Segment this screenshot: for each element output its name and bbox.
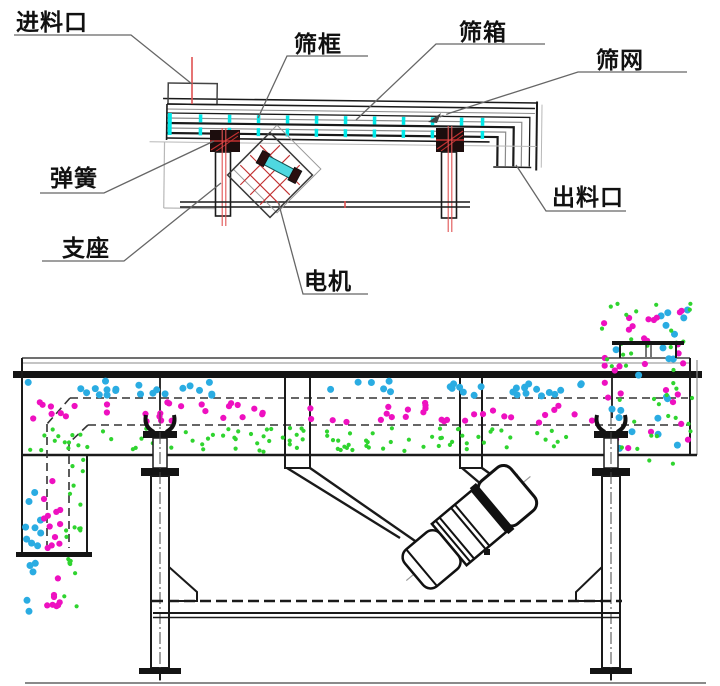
leader-lines — [14, 35, 687, 294]
label-discharge-outlet: 出料口 — [552, 184, 624, 210]
base-plate-left — [139, 668, 181, 674]
exciter-cylinder — [256, 150, 301, 183]
gusset-right — [576, 567, 602, 601]
particle-layer-left-channel-magenta — [41, 478, 63, 551]
particle-layer-left-stream-magenta — [44, 575, 63, 609]
label-motor: 电机 — [304, 268, 352, 294]
label-support: 支座 — [61, 235, 110, 261]
particle-layer-left-stream-green — [62, 557, 78, 608]
label-spring: 弹簧 — [50, 165, 98, 191]
vibrating-screen-diagram: 进料口 筛框 筛箱 筛网 弹簧 支座 电机 出料口 — [0, 0, 720, 686]
left-outlet-flange — [16, 552, 92, 557]
support-post-right — [442, 152, 457, 218]
motor-bolt — [484, 549, 490, 555]
particle-layer-left-channel-blue — [22, 489, 44, 549]
particle-layer-top-deck-oversize — [25, 378, 585, 400]
spring-assembly-right — [592, 415, 630, 476]
base-plate-right — [590, 668, 632, 674]
vibration-motor — [387, 453, 550, 603]
label-screen-mesh: 筛网 — [596, 47, 644, 73]
gusset-left — [169, 567, 197, 601]
particle-layer-feed-column-magenta — [601, 308, 691, 452]
label-screen-frame: 筛框 — [294, 31, 342, 57]
material-particles — [22, 302, 694, 615]
support-frame — [139, 412, 632, 681]
particle-layer-left-stream-blue — [24, 560, 39, 615]
particle-layer-mid-deck-medium — [30, 399, 595, 426]
spring-assembly-left — [141, 415, 179, 476]
cross-section-diagram — [13, 302, 706, 683]
spring-block-left — [210, 130, 240, 152]
particle-layer-bottom-deck-fines — [28, 426, 568, 454]
label-screen-box: 筛箱 — [459, 19, 507, 45]
side-view-diagram: 进料口 筛框 筛箱 筛网 弹簧 支座 电机 出料口 — [14, 9, 687, 294]
label-feed-inlet: 进料口 — [16, 9, 88, 35]
spring-block-right — [436, 128, 464, 152]
discharge-chute-wall — [536, 102, 537, 171]
